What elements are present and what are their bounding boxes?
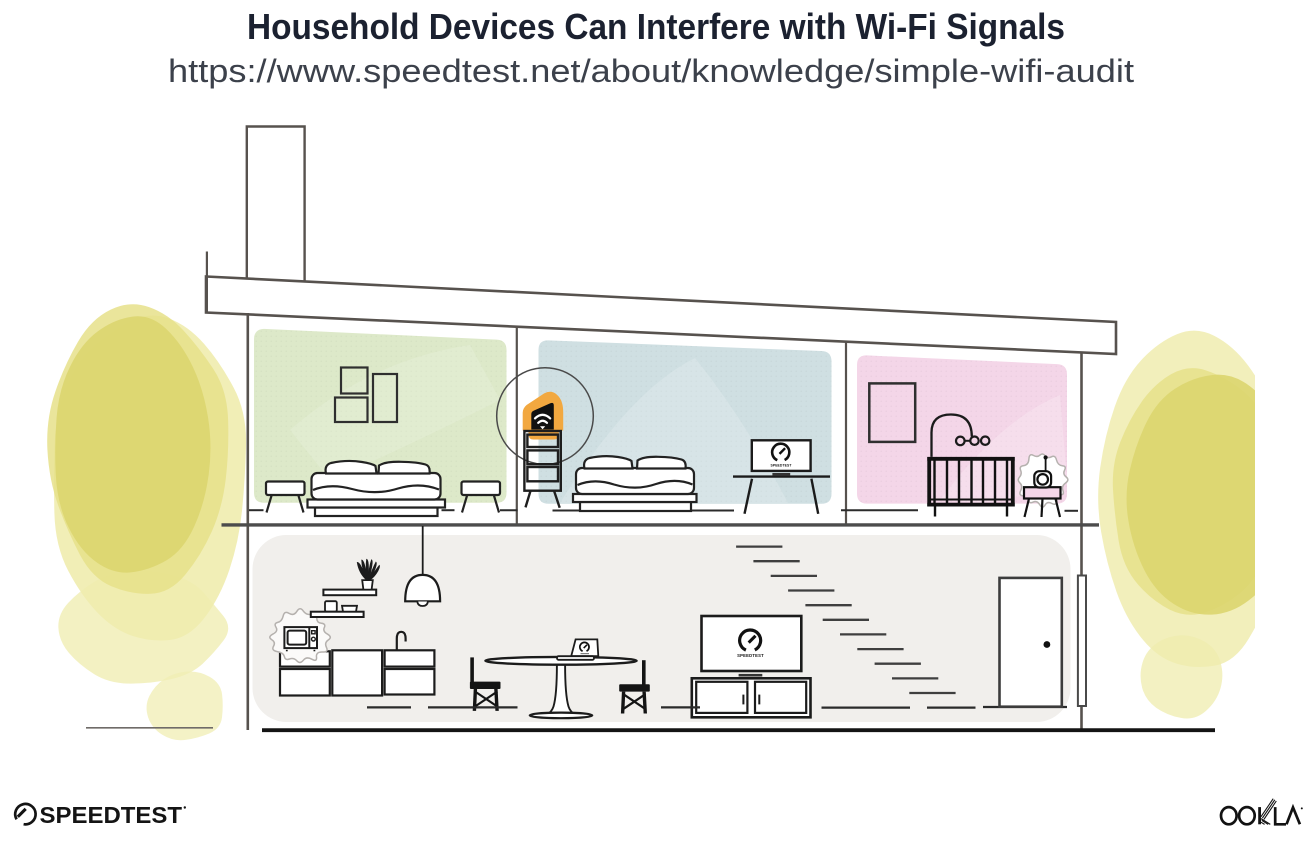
svg-text:SPEEDTEST: SPEEDTEST	[770, 464, 792, 468]
svg-text:Household Devices Can Interfer: Household Devices Can Interfere with Wi-…	[247, 6, 1065, 47]
svg-text:SPEEDTEST: SPEEDTEST	[40, 802, 183, 828]
svg-text:https://www.speedtest.net/abou: https://www.speedtest.net/about/knowledg…	[168, 53, 1134, 89]
svg-text:SPEEDTEST: SPEEDTEST	[737, 653, 764, 658]
